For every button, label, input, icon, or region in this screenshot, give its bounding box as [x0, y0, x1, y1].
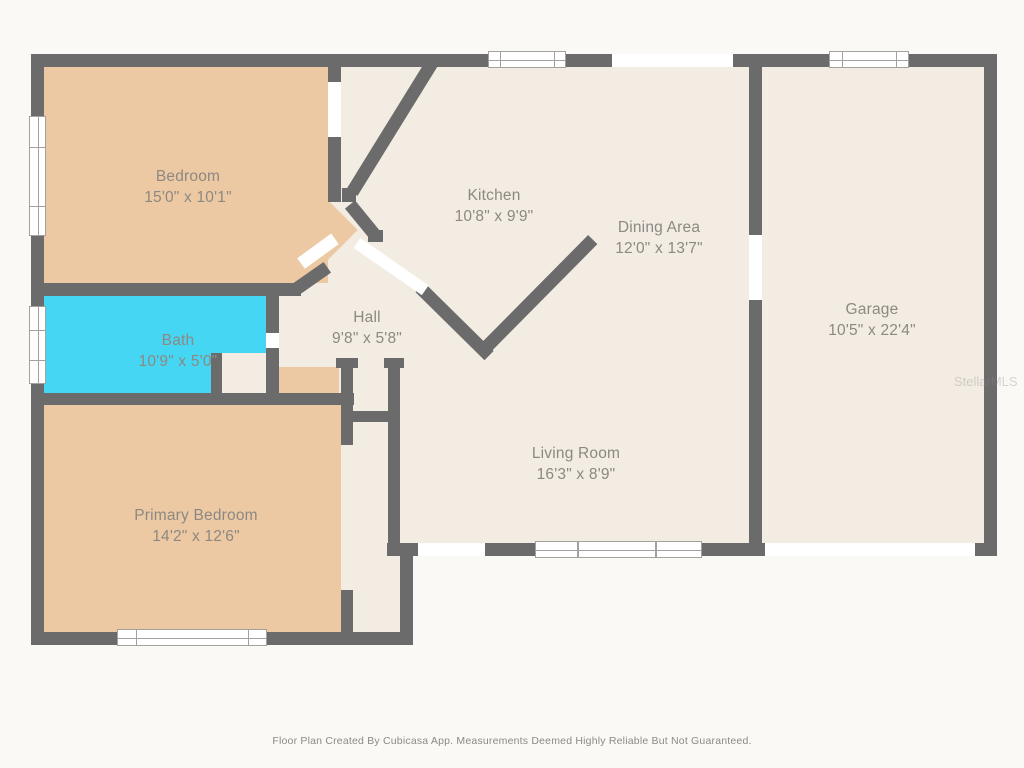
room-label-garage: Garage 10'5" x 22'4"	[762, 299, 982, 341]
wall-primary-top	[31, 393, 354, 405]
room-name: Garage	[846, 301, 899, 318]
wall-hall-closet-right-cap	[384, 358, 404, 368]
room-label-living-room: Living Room 16'3" x 8'9"	[466, 443, 686, 485]
wall-hall-closet-left	[341, 358, 353, 445]
room-label-primary-bedroom: Primary Bedroom 14'2" x 12'6"	[86, 505, 306, 547]
wall-left-a	[31, 54, 44, 118]
opening-garage-vehicle-door	[765, 543, 975, 556]
garage-window	[829, 51, 909, 68]
wall-left-c	[31, 382, 44, 645]
room-name: Living Room	[532, 445, 620, 462]
wall-jog-vertical	[400, 556, 413, 645]
room-label-dining-area: Dining Area 12'0" x 13'7"	[549, 217, 769, 259]
room-dims: 14'2" x 12'6"	[86, 526, 306, 547]
mls-watermark: StellarMLS	[954, 374, 1018, 389]
living-room-window	[535, 541, 702, 558]
wall-living-bottom-a	[485, 543, 537, 556]
room-dims: 9'8" x 5'8"	[257, 328, 477, 349]
opening-bedroom-door	[328, 82, 341, 137]
wall-garage-left-lower	[749, 300, 762, 556]
room-name: Bath	[162, 332, 195, 349]
room-dims: 10'9" x 5'0"	[68, 351, 288, 372]
wall-garage-right	[984, 54, 997, 556]
wall-top-b	[566, 54, 612, 67]
bedroom-window	[29, 116, 46, 236]
bath-window	[29, 306, 46, 384]
room-name: Dining Area	[618, 219, 700, 236]
room-dims: 16'3" x 8'9"	[466, 464, 686, 485]
disclaimer-text: Floor Plan Created By Cubicasa App. Meas…	[0, 735, 1024, 747]
wall-hall-closet-divider	[341, 411, 400, 422]
room-label-hall: Hall 9'8" x 5'8"	[257, 307, 477, 349]
opening-entry-door	[418, 543, 485, 556]
room-name: Bedroom	[156, 168, 220, 185]
wall-hall-closet-left-cap	[336, 358, 358, 368]
room-label-bedroom: Bedroom 15'0" x 10'1"	[78, 166, 298, 208]
wall-bedroom-bottom	[31, 283, 301, 296]
room-name: Hall	[353, 309, 381, 326]
room-name: Kitchen	[467, 187, 520, 204]
wall-door-leaf-stub	[368, 230, 383, 242]
room-dims: 12'0" x 13'7"	[549, 238, 769, 259]
wall-bedroom-right-stub	[328, 67, 341, 82]
kitchen-window	[488, 51, 566, 68]
primary-bedroom-window	[117, 629, 267, 646]
room-name: Primary Bedroom	[134, 507, 258, 524]
room-label-bath: Bath 10'9" x 5'0"	[68, 330, 288, 372]
wall-primary-right-lower	[341, 590, 353, 632]
wall-living-bottom-stub	[400, 543, 418, 556]
wall-top-a	[31, 54, 490, 67]
wall-bedroom-right	[328, 137, 341, 202]
opening-patio-slider	[612, 54, 733, 67]
wall-garage-left-upper	[749, 67, 762, 235]
wall-left-b	[31, 234, 44, 308]
floor-plan: Bedroom 15'0" x 10'1" Kitchen 10'8" x 9'…	[0, 0, 1024, 768]
wall-hall-closet-right	[388, 358, 400, 543]
room-dims: 15'0" x 10'1"	[78, 187, 298, 208]
room-dims: 10'5" x 22'4"	[762, 320, 982, 341]
